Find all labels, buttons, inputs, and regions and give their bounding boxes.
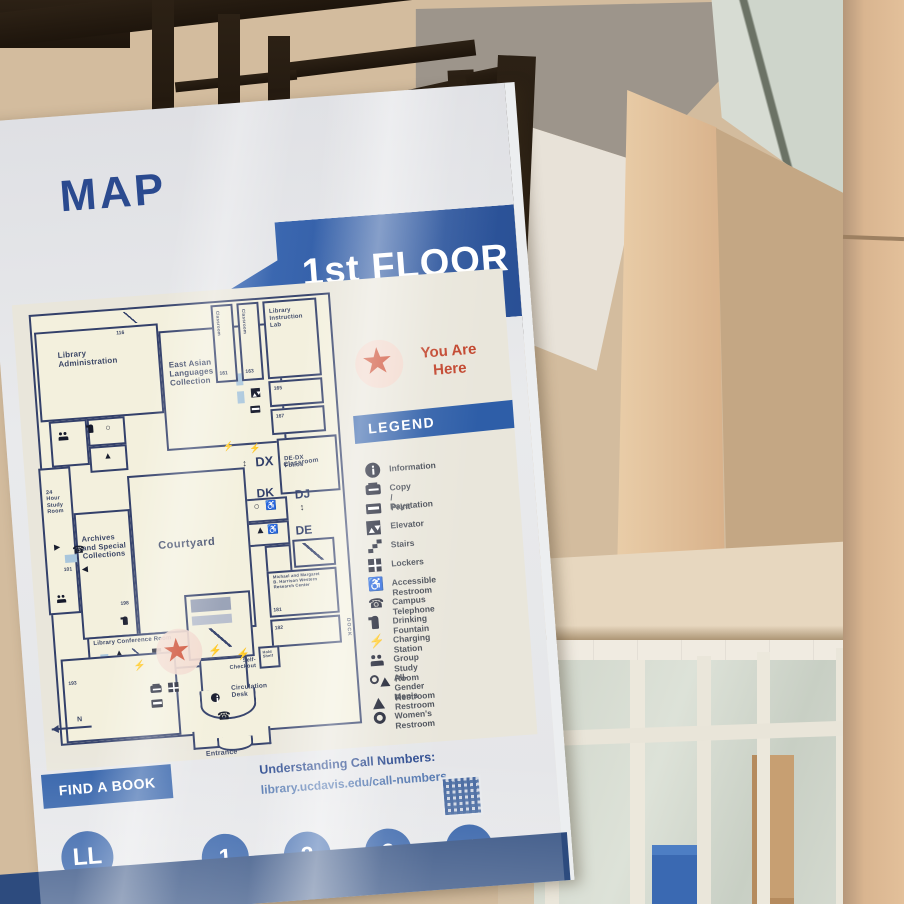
- exit-arrow-icon: ▶: [54, 543, 61, 551]
- call-range-note: DE-DX Folios: [284, 455, 305, 470]
- room-number: 181: [273, 607, 282, 614]
- legend-item: Group Study Room: [365, 654, 366, 670]
- room-restrooms-west: [49, 419, 90, 468]
- accessible-restroom-icon: ♿: [367, 576, 383, 592]
- sign-title: MAP: [58, 164, 168, 222]
- drinking-fountain-icon: [123, 616, 129, 625]
- copy-print-icon: [150, 685, 162, 693]
- womens-restroom-icon: ○: [253, 502, 260, 512]
- door-marker: [237, 391, 245, 403]
- paystation-icon: [151, 699, 163, 708]
- call-range: DE: [295, 522, 313, 537]
- right-pillar: [843, 0, 904, 904]
- womens-restroom-icon: ○: [105, 423, 111, 432]
- qr-code: [440, 774, 483, 817]
- floorplan: Library Administration 116 ○ ▲ 24 Hour S…: [14, 288, 367, 766]
- drinking-fountain-icon: [88, 424, 94, 433]
- group-study-icon: [57, 430, 69, 442]
- mens-restroom-icon: [370, 690, 386, 706]
- room-number: 165: [274, 385, 283, 392]
- dock-label: DOCK: [344, 618, 351, 637]
- shaded-wall: [716, 128, 843, 560]
- room-library-administration: [34, 323, 164, 422]
- copy-print-icon: [365, 484, 381, 495]
- group-study-room-icon: [369, 652, 385, 668]
- room-archives: [74, 509, 139, 640]
- door-marker: [65, 554, 78, 563]
- mens-restroom-icon: ▲: [255, 526, 266, 537]
- all-gender-restroom-icon: [369, 671, 385, 687]
- room-label: Archives and Special Collections: [81, 532, 127, 561]
- legend-item: Copy / Print: [361, 483, 362, 499]
- entrance-label: Entrance: [206, 749, 238, 759]
- map-panel: Library Administration 116 ○ ▲ 24 Hour S…: [12, 268, 538, 771]
- exit-arrow-icon: ◀: [82, 565, 89, 573]
- room-number: 163: [245, 368, 254, 375]
- elevator-icon: [366, 520, 381, 535]
- room-number: 167: [276, 413, 285, 420]
- north-label: N: [77, 716, 83, 724]
- legend-title: LEGEND: [353, 400, 514, 444]
- interior-blue-sign: [652, 845, 700, 904]
- map-sign: MAP 1st FLOOR Library Administration 116…: [0, 82, 574, 904]
- group-study-icon: [56, 593, 67, 604]
- room-label: 24 Hour Study Room: [46, 489, 64, 515]
- room-182: [270, 615, 342, 648]
- legend-item: Stairs: [362, 540, 363, 556]
- legend-item: All-Gender Restroom: [365, 673, 366, 689]
- charging-station-icon: ⚡: [369, 633, 385, 649]
- campus-telephone-icon: ☎: [217, 711, 231, 723]
- charging-station-icon: ⚡: [223, 442, 235, 452]
- lockers-icon: [168, 682, 179, 692]
- accessible-icon: ♿: [265, 501, 277, 511]
- room-number: 161: [219, 370, 228, 377]
- legend-item: Drinking Fountain: [364, 616, 365, 632]
- lockers-icon: [368, 558, 382, 572]
- stairs-icon: [366, 538, 382, 554]
- paystation-icon: [366, 503, 382, 514]
- mens-restroom-icon: ▲: [103, 451, 113, 461]
- legend-item: Paystation: [362, 502, 363, 518]
- paystation-icon: [250, 405, 260, 413]
- campus-telephone-icon: ☎: [368, 595, 384, 611]
- charging-station-icon: ⚡: [133, 661, 146, 672]
- you-are-here-star-icon: ★: [360, 339, 395, 383]
- room-number: 116: [116, 330, 125, 337]
- center-column: [616, 90, 728, 625]
- window-mullion: [630, 660, 645, 904]
- legend-item: ♿Accessible Restroom: [363, 578, 364, 594]
- room-number: 193: [68, 680, 77, 687]
- room-167: [270, 405, 326, 435]
- elevator-icon: [251, 388, 261, 398]
- charging-station-icon: ⚡: [208, 646, 222, 658]
- charging-station-icon: ⚡: [249, 444, 261, 454]
- find-a-book-banner: FIND A BOOK: [41, 764, 173, 809]
- room-label: Library Instruction Lab: [269, 307, 304, 330]
- legend-item: ☎Campus Telephone: [364, 597, 365, 613]
- you-are-here-star-icon: ★: [161, 630, 192, 670]
- legend-item: Men's Restroom: [366, 692, 367, 708]
- window-mullion: [757, 652, 770, 904]
- legend-item: Information: [361, 464, 362, 480]
- call-range: DX: [255, 453, 274, 469]
- room-165: [268, 377, 324, 407]
- range-arrow-icon: ↕: [299, 503, 304, 512]
- room-label: Circulation Desk: [231, 682, 268, 700]
- drinking-fountain-icon: [371, 616, 379, 629]
- room-label: Self- Checkout: [229, 657, 257, 672]
- room-label: Hold Shelf: [262, 650, 273, 659]
- legend-item: Elevator: [362, 521, 363, 537]
- legend-item: Women's Restroom: [366, 711, 367, 727]
- legend-item: Lockers: [363, 559, 364, 575]
- stairs-mark: [123, 311, 138, 324]
- room-label: East Asian Languages Collection: [168, 357, 214, 388]
- call-range: DJ: [294, 486, 310, 501]
- room-number: 198: [120, 600, 129, 607]
- window-mullion: [697, 656, 711, 904]
- accessible-icon: ♿: [267, 525, 279, 535]
- stairs-mark: [300, 542, 325, 562]
- room-number: 101: [64, 567, 73, 574]
- legend-item: ⚡Charging Station: [365, 635, 366, 651]
- you-are-here-label: You Are Here: [410, 340, 488, 382]
- photo-of-library-map-sign: MAP 1st FLOOR Library Administration 116…: [0, 0, 904, 904]
- room-number: 182: [275, 625, 284, 632]
- womens-restroom-icon: [370, 709, 386, 725]
- information-icon: [365, 462, 381, 478]
- north-arrow-head: [47, 725, 59, 734]
